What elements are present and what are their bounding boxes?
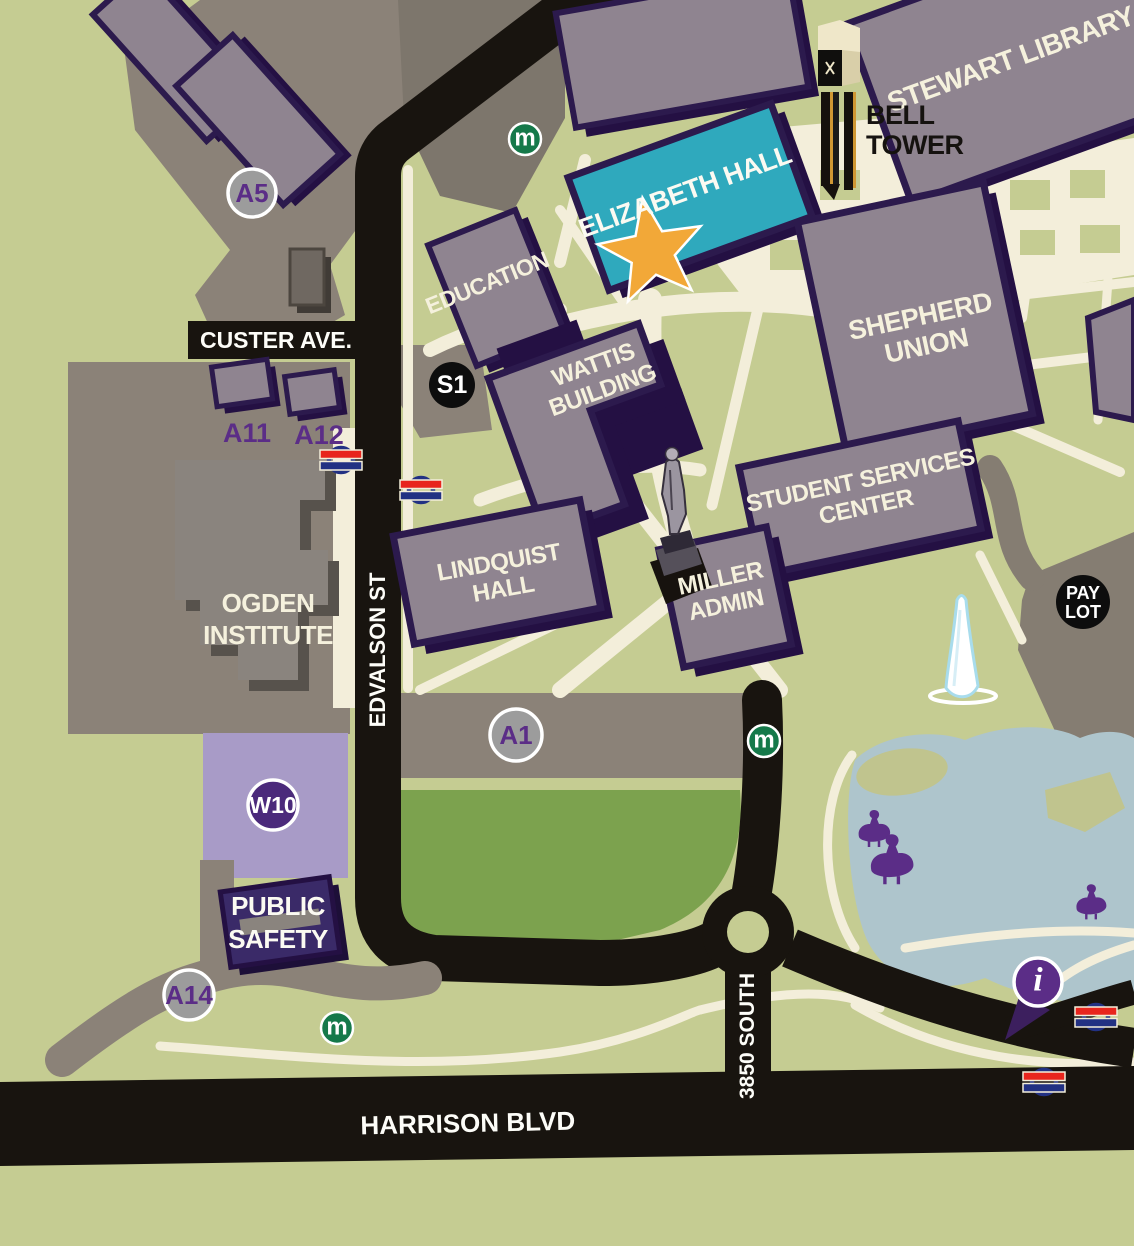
road-3850-south-label: 3850 SOUTH (736, 973, 759, 1099)
metro-label: m (326, 1014, 347, 1041)
svg-text:PUBLIC: PUBLIC (231, 891, 326, 921)
svg-text:OGDEN: OGDEN (222, 588, 315, 618)
metro-label: m (753, 727, 774, 754)
badge-a5[interactable]: A5 (228, 169, 276, 217)
a11-label: A11 (223, 418, 271, 448)
svg-text:BELL: BELL (866, 100, 935, 130)
building-utility (290, 249, 331, 313)
badge-s1[interactable]: S1 (429, 362, 475, 408)
badge-a5-label: A5 (235, 178, 268, 208)
building-a11 (211, 358, 280, 414)
svg-text:TOWER: TOWER (866, 130, 964, 160)
metro-stop-marker[interactable]: m (748, 725, 780, 757)
metro-stop-marker[interactable]: m (321, 1012, 353, 1044)
badge-a14-label: A14 (165, 980, 213, 1010)
edvalson-st-label: EDVALSON ST (365, 572, 390, 727)
badge-w10[interactable]: W10 (248, 780, 298, 830)
badge-s1-label: S1 (437, 371, 468, 399)
harrison-blvd-label: HARRISON BLVD (360, 1106, 575, 1141)
custer-ave-label: CUSTER AVE. (200, 327, 352, 353)
svg-text:SAFETY: SAFETY (228, 924, 328, 954)
campus-map: m m m i A5 S1 A1 W10 (0, 0, 1134, 1246)
bell-tower-icon (818, 20, 860, 200)
metro-stop-marker[interactable]: m (509, 123, 541, 155)
badge-pay-label: PAY (1066, 583, 1100, 603)
info-label: i (1033, 962, 1043, 999)
badge-lot-label: LOT (1065, 602, 1101, 622)
badge-a1-label: A1 (499, 720, 532, 750)
building-union-annex (1088, 300, 1134, 420)
a12-label: A12 (294, 420, 344, 450)
badge-w10-label: W10 (249, 792, 296, 818)
metro-label: m (514, 125, 535, 152)
badge-a1[interactable]: A1 (490, 709, 542, 761)
badge-a14[interactable]: A14 (164, 970, 214, 1020)
badge-pay-lot[interactable]: PAY LOT (1056, 575, 1110, 629)
svg-text:INSTITUTE: INSTITUTE (203, 620, 333, 650)
